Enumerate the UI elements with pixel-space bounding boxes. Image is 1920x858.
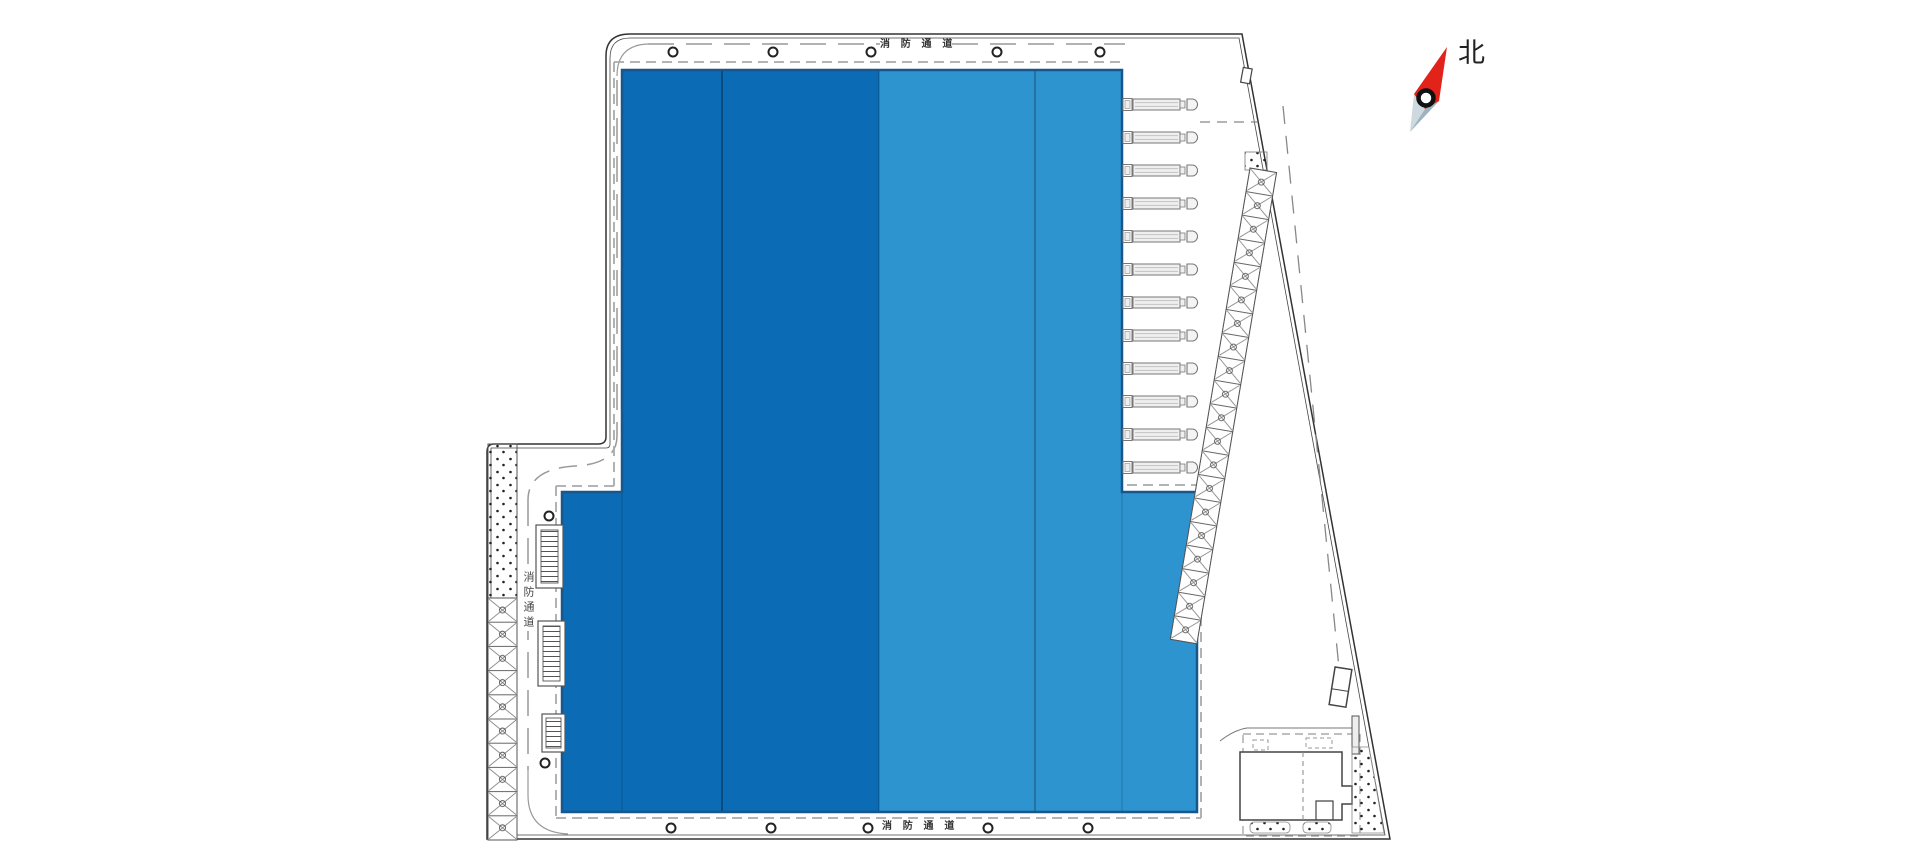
fire-lane-label-top: 消 防 通 道 [880,39,952,51]
dock-truck [1123,165,1198,177]
dock-truck [1123,330,1198,342]
north-arrow-pivot [1419,91,1434,106]
site-plan-drawing [0,0,1920,858]
hydrant-marker [984,824,993,833]
hydrant-marker [541,759,550,768]
west-strip [488,444,517,840]
hydrant-marker [864,824,873,833]
warehouse-west-bays [562,70,879,812]
hydrant-marker [1096,48,1105,57]
ramp-3-treads [546,718,561,748]
hydrant-marker [993,48,1002,57]
guard-house [1329,667,1352,707]
southeast-planting-wedge [1352,747,1384,833]
fire-lane-label-bottom: 消 防 通 道 [882,821,954,833]
ramp-2-treads [543,626,560,681]
hydrant-marker [669,48,678,57]
ramp-1-treads [541,530,558,583]
aux-canopy-1 [1253,740,1268,750]
hydrant-marker [769,48,778,57]
hydrant-marker [667,824,676,833]
hydrant-marker [1084,824,1093,833]
fire-lane-label-left: 消防通道 [521,571,534,631]
boundary-gate-notch [1241,67,1253,83]
dock-truck [1123,198,1198,210]
west-ramps [536,525,565,752]
dock-truck [1123,231,1198,243]
site-plan-canvas: 消 防 通 道 消 防 通 道 消防通道 北 [0,0,1920,858]
loading-dock-trucks [1123,99,1198,474]
north-arrow [1410,47,1447,132]
dock-truck [1123,132,1198,144]
east-planting-patch [1245,152,1267,170]
dock-truck [1123,99,1198,111]
planting-bed-2 [1303,822,1331,833]
north-label: 北 [1458,40,1485,67]
west-planting-strip [488,444,517,598]
fire-lane-step-curve [528,436,617,500]
guard-house-outline [1329,667,1352,707]
aux-canopy-2 [1306,738,1332,748]
east-parking-stalls [1170,168,1276,644]
aux-building-outline [1240,752,1352,820]
east-road-dashed-line [1283,106,1340,678]
warehouse-building [562,70,1197,812]
west-parking-stalls [488,598,517,840]
dock-truck [1123,462,1198,474]
hydrant-marker [867,48,876,57]
dock-truck [1123,363,1198,375]
auxiliary-building-complex [1220,716,1384,836]
hydrant-marker [545,512,554,521]
planting-bed-1 [1250,822,1290,833]
hydrant-marker [767,824,776,833]
dock-truck [1123,396,1198,408]
warehouse-east-bays [879,70,1197,812]
dock-truck [1123,297,1198,309]
dock-truck [1123,429,1198,441]
dock-truck [1123,264,1198,276]
